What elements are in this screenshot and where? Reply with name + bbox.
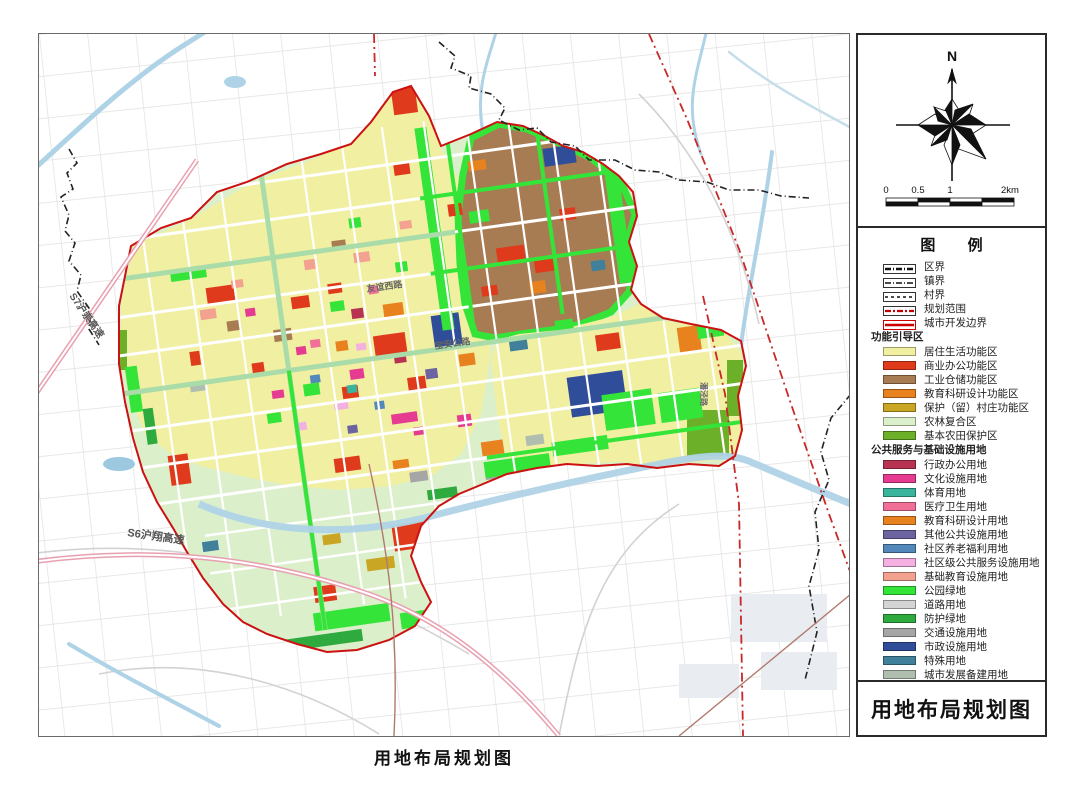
legend-swatch <box>883 389 916 398</box>
legend-item: 商业办公功能区 <box>858 358 1045 372</box>
compass-rose-icon <box>896 69 1010 181</box>
legend-section-header: 公共服务与基础设施用地 <box>858 442 1045 457</box>
legend-item-label: 防护绿地 <box>924 611 966 626</box>
legend-item-label: 居住生活功能区 <box>924 344 998 359</box>
legend-swatch <box>883 656 916 665</box>
legend-swatch <box>883 544 916 553</box>
map-title-box: 用地布局规划图 <box>858 680 1045 735</box>
legend-item: 公园绿地 <box>858 583 1045 597</box>
boundary-line-swatch <box>883 317 916 327</box>
legend-swatch <box>883 530 916 539</box>
legend-swatch <box>883 460 916 469</box>
legend-swatch <box>883 403 916 412</box>
legend-item: 文化设施用地 <box>858 471 1045 485</box>
legend-swatch <box>883 572 916 581</box>
legend-item-label: 商业办公功能区 <box>924 358 998 373</box>
legend-item: 社区级公共服务设施用地 <box>858 555 1045 569</box>
legend-title: 图 例 <box>858 232 1045 259</box>
scale-bar: 0 0.5 1 2km <box>883 185 1019 206</box>
legend-item-label: 特殊用地 <box>924 653 966 668</box>
boundary-line-swatch <box>883 261 916 271</box>
legend-item-label: 其他公共设施用地 <box>924 527 1008 542</box>
legend-line-label: 规划范围 <box>924 301 966 316</box>
legend-item-label: 基本农田保护区 <box>924 428 998 443</box>
boundary-line-swatch <box>883 275 916 285</box>
legend-item: 农林复合区 <box>858 414 1045 428</box>
legend-swatch <box>883 347 916 356</box>
legend-line-item: 村界 <box>858 287 1045 301</box>
legend-line-label: 镇界 <box>924 273 945 288</box>
legend-item: 其他公共设施用地 <box>858 527 1045 541</box>
legend-item: 道路用地 <box>858 597 1045 611</box>
legend-item-label: 道路用地 <box>924 597 966 612</box>
legend-item: 教育科研设计用地 <box>858 513 1045 527</box>
legend-item-label: 行政办公用地 <box>924 457 987 472</box>
legend-swatch <box>883 628 916 637</box>
legend-swatch <box>883 586 916 595</box>
svg-text:2km: 2km <box>1001 185 1019 196</box>
legend-item-label: 体育用地 <box>924 485 966 500</box>
legend-item: 医疗卫生用地 <box>858 499 1045 513</box>
map-title: 用地布局规划图 <box>871 694 1032 724</box>
legend-swatch <box>883 614 916 623</box>
legend-item: 行政办公用地 <box>858 457 1045 471</box>
legend-swatch <box>883 670 916 679</box>
legend-swatch <box>883 502 916 511</box>
boundary-line-swatch <box>883 289 916 299</box>
legend-item: 教育科研设计功能区 <box>858 386 1045 400</box>
planning-map-page: S7沪崇高速 S6沪翔高速 友谊西路 宝安公路 潘泾路 N <box>0 0 1080 801</box>
legend-line-label: 区界 <box>924 259 945 274</box>
landuse-map: S7沪崇高速 S6沪翔高速 友谊西路 宝安公路 潘泾路 <box>39 34 849 736</box>
legend-swatch <box>883 642 916 651</box>
boundary-line-swatch <box>883 303 916 313</box>
legend-box: 图 例 区界 镇界 村界 规划范围 城市开发边界 功能引导区 <box>858 228 1045 680</box>
legend-swatch <box>883 417 916 426</box>
legend-item: 市政设施用地 <box>858 639 1045 653</box>
legend-item-label: 教育科研设计功能区 <box>924 386 1019 401</box>
map-frame: S7沪崇高速 S6沪翔高速 友谊西路 宝安公路 潘泾路 <box>38 33 850 737</box>
legend-item-label: 社区级公共服务设施用地 <box>924 555 1040 570</box>
legend-item-label: 社区养老福利用地 <box>924 541 1008 556</box>
svg-text:0.5: 0.5 <box>911 185 924 196</box>
legend-item: 防护绿地 <box>858 611 1045 625</box>
legend-line-label: 城市开发边界 <box>924 315 987 330</box>
svg-text:1: 1 <box>947 185 952 196</box>
legend-item-label: 文化设施用地 <box>924 471 987 486</box>
legend-item-label: 公园绿地 <box>924 583 966 598</box>
legend-item: 基础教育设施用地 <box>858 569 1045 583</box>
legend-item-label: 教育科研设计用地 <box>924 513 1008 528</box>
legend-item: 居住生活功能区 <box>858 344 1045 358</box>
legend-item-label: 保护（留）村庄功能区 <box>924 400 1029 415</box>
north-label: N <box>947 48 957 64</box>
legend-item-label: 市政设施用地 <box>924 639 987 654</box>
legend-line-item: 镇界 <box>858 273 1045 287</box>
legend-item-label: 工业仓储功能区 <box>924 372 998 387</box>
legend-swatch <box>883 474 916 483</box>
legend-swatch <box>883 375 916 384</box>
legend-item-label: 城市发展备建用地 <box>924 667 1008 681</box>
legend-item: 交通设施用地 <box>858 625 1045 639</box>
legend-item-label: 交通设施用地 <box>924 625 987 640</box>
legend-item: 体育用地 <box>858 485 1045 499</box>
compass-scale: N 0 0.5 1 2k <box>858 35 1045 225</box>
legend-item: 社区养老福利用地 <box>858 541 1045 555</box>
road-label-panjing: 潘泾路 <box>699 382 709 407</box>
page-caption: 用地布局规划图 <box>38 744 850 769</box>
parcels-sports <box>346 384 357 393</box>
legend-item-label: 医疗卫生用地 <box>924 499 987 514</box>
legend-line-item: 城市开发边界 <box>858 315 1045 329</box>
legend-swatch <box>883 600 916 609</box>
svg-text:0: 0 <box>883 185 888 196</box>
legend-swatch <box>883 488 916 497</box>
legend-item: 工业仓储功能区 <box>858 372 1045 386</box>
compass-box: N 0 0.5 1 2k <box>858 35 1045 228</box>
legend-item-label: 基础教育设施用地 <box>924 569 1008 584</box>
legend-line-item: 规划范围 <box>858 301 1045 315</box>
legend-swatch <box>883 431 916 440</box>
legend-item: 基本农田保护区 <box>858 428 1045 442</box>
legend-swatch <box>883 558 916 567</box>
legend-line-item: 区界 <box>858 259 1045 273</box>
legend-item: 特殊用地 <box>858 653 1045 667</box>
legend-swatch <box>883 361 916 370</box>
legend-section-header: 功能引导区 <box>858 329 1045 344</box>
legend-swatch <box>883 516 916 525</box>
legend-panel: N 0 0.5 1 2k <box>856 33 1047 737</box>
legend-line-label: 村界 <box>924 287 945 302</box>
legend-item: 保护（留）村庄功能区 <box>858 400 1045 414</box>
legend-item: 城市发展备建用地 <box>858 667 1045 680</box>
legend-item-label: 农林复合区 <box>924 414 977 429</box>
